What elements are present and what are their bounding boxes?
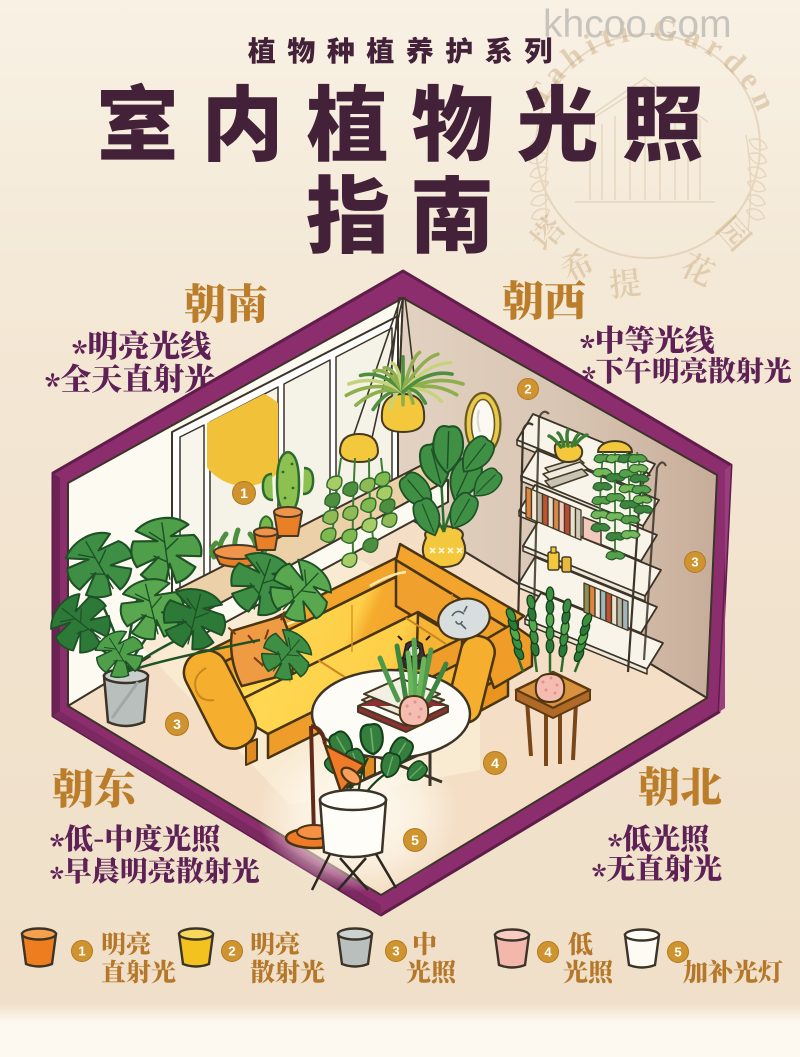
- svg-text:3: 3: [392, 943, 399, 958]
- svg-text:4: 4: [491, 755, 499, 771]
- svg-text:3: 3: [691, 554, 698, 569]
- svg-text:1: 1: [240, 485, 248, 501]
- svg-text:2: 2: [524, 381, 531, 396]
- svg-text:khcoo.com: khcoo.com: [543, 3, 732, 46]
- svg-text:4: 4: [544, 944, 552, 959]
- svg-text:5: 5: [411, 832, 419, 848]
- svg-text:3: 3: [173, 716, 181, 732]
- svg-text:1: 1: [78, 943, 85, 958]
- svg-text:2: 2: [228, 943, 235, 958]
- svg-text:5: 5: [674, 944, 681, 959]
